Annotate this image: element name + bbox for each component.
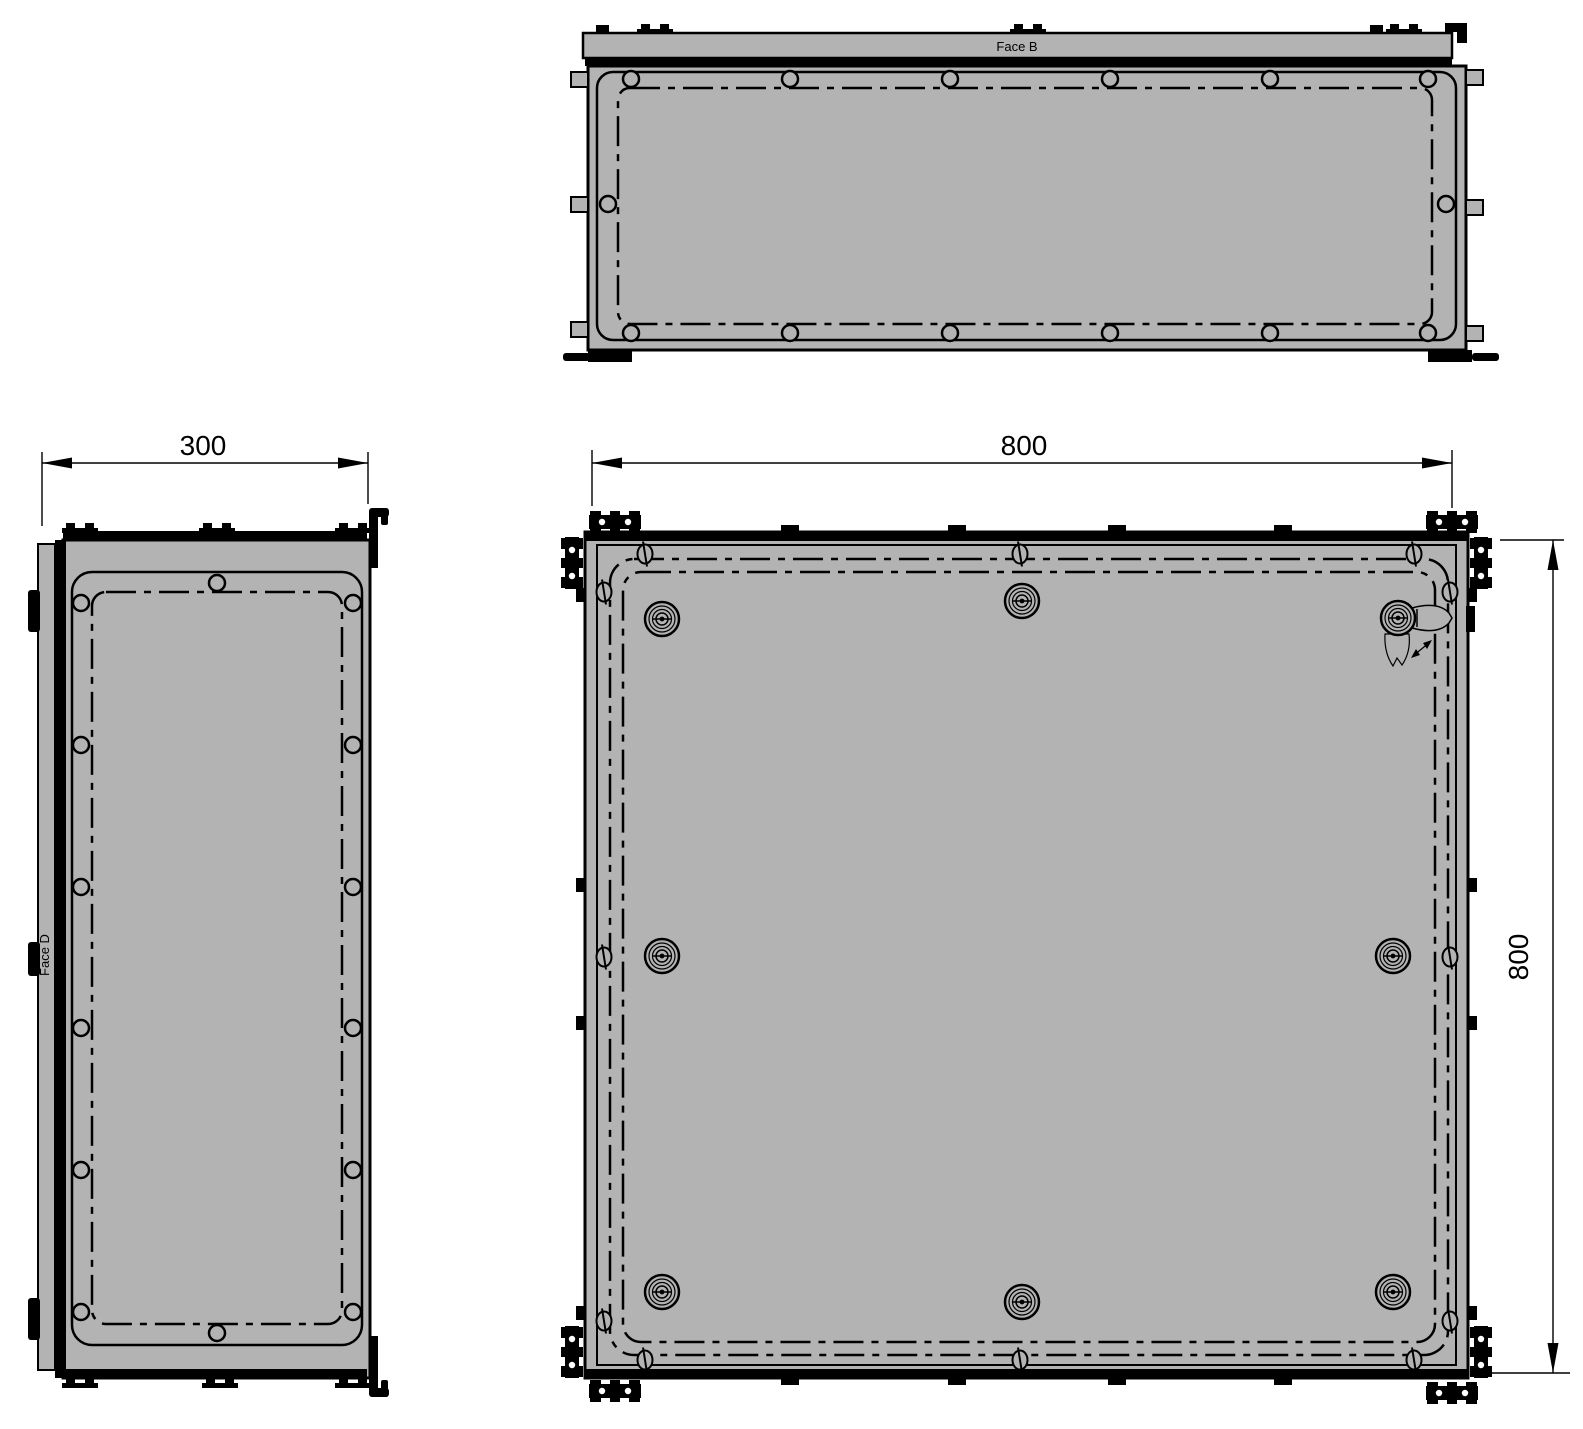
- quarter-turn-fastener-icon: [1005, 1285, 1039, 1319]
- side-view: 300 Face D: [28, 430, 389, 1397]
- dimension-300: 300: [42, 430, 368, 526]
- dimension-800-height: 800: [1484, 540, 1570, 1373]
- front-door-panel: [585, 532, 1468, 1378]
- drawing-page: Face B: [0, 0, 1583, 1429]
- bottom-edge: [585, 1369, 1468, 1378]
- mounting-bracket: [563, 350, 1499, 362]
- top-edge: [585, 532, 1468, 541]
- dimension-800-width-value: 800: [1001, 430, 1048, 461]
- enclosure-three-view-drawing: Face B: [0, 0, 1583, 1429]
- dimension-800-height-value: 800: [1503, 934, 1534, 981]
- quarter-turn-fastener-icon: [1381, 601, 1415, 635]
- quarter-turn-fastener-icon: [1005, 584, 1039, 618]
- quarter-turn-fastener-icon: [645, 939, 679, 973]
- profile-extrusion-icon: [1426, 1382, 1478, 1404]
- quarter-turn-fastener-icon: [1376, 1275, 1410, 1309]
- quarter-turn-fastener-icon: [645, 1275, 679, 1309]
- quarter-turn-fastener-icon: [645, 602, 679, 636]
- face-d-label: Face D: [37, 934, 52, 976]
- side-body: [63, 540, 370, 1378]
- face-b-label: Face B: [996, 39, 1037, 54]
- door-gap: [55, 540, 66, 1378]
- profile-extrusion-icon: [1470, 1326, 1492, 1378]
- profile-extrusion-icon: [589, 1380, 641, 1402]
- profile-extrusion-icon: [589, 511, 641, 533]
- front-view: 800 800: [561, 430, 1570, 1404]
- dimension-800-width: 800: [592, 430, 1452, 508]
- top-view: Face B: [563, 23, 1499, 362]
- profile-extrusion-icon: [1470, 537, 1492, 589]
- dimension-300-value: 300: [180, 430, 227, 461]
- top-body: [588, 66, 1466, 350]
- latch-side-icon: [369, 508, 389, 1397]
- profile-extrusion-icon: [561, 537, 583, 589]
- quarter-turn-fastener-icon: [1376, 939, 1410, 973]
- latch-shaft: [1466, 606, 1475, 632]
- profile-extrusion-icon: [1426, 511, 1478, 533]
- profile-extrusion-icon: [561, 1326, 583, 1378]
- bottom-edge: [63, 1369, 367, 1378]
